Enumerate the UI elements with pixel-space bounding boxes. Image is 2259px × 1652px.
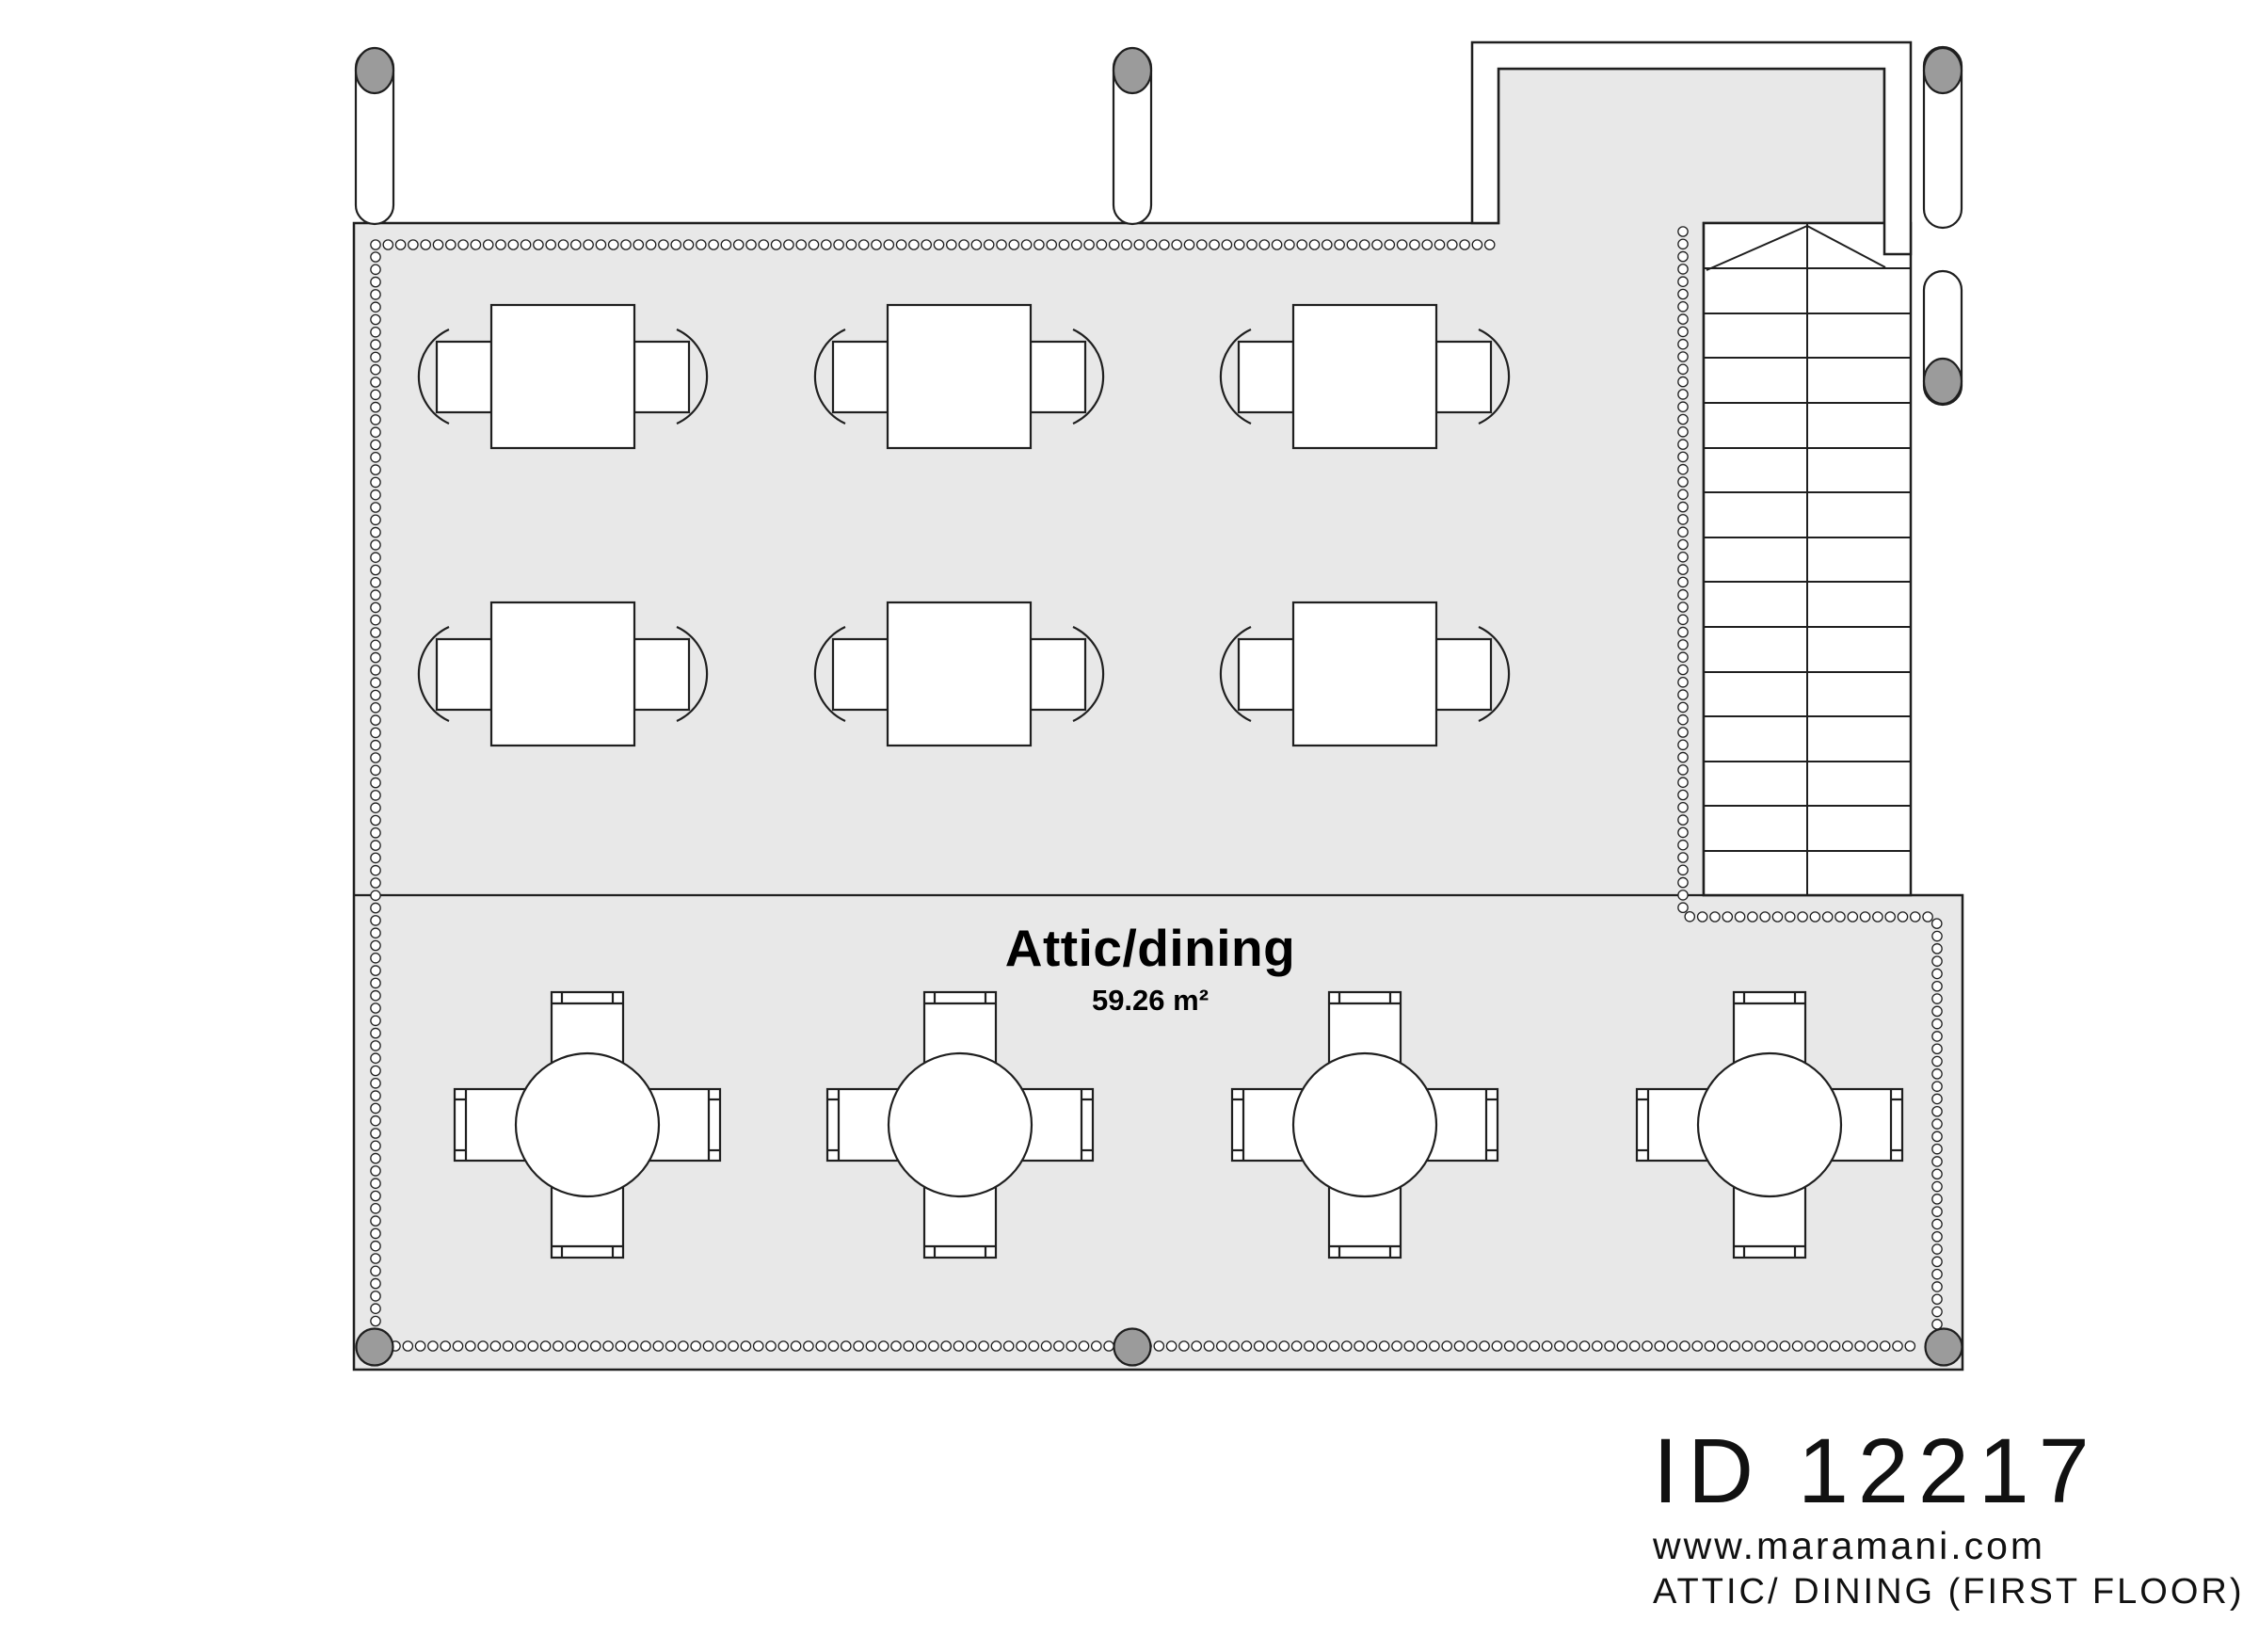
roof-column-cap: [1113, 48, 1151, 93]
floor-column: [1114, 1329, 1151, 1366]
roof-column-cap: [356, 48, 393, 93]
roof-column-cap: [1924, 359, 1962, 404]
floor-column: [357, 1329, 393, 1366]
floor-column: [1926, 1329, 1963, 1366]
room-label-box: Attic/dining 59.26 m²: [960, 922, 1340, 1015]
roof-column-cap: [1924, 48, 1962, 93]
website-url: www.maramani.com: [1653, 1527, 2244, 1565]
room-name: Attic/dining: [960, 922, 1340, 974]
plan-id: ID 12217: [1653, 1425, 2244, 1518]
room-area: 59.26 m²: [960, 986, 1340, 1015]
staircase: [1704, 223, 1911, 895]
floor-plan-canvas: [0, 0, 2259, 1652]
plan-footer: ID 12217 www.maramani.com ATTIC/ DINING …: [1653, 1425, 2244, 1610]
floor-title: ATTIC/ DINING (FIRST FLOOR): [1653, 1574, 2244, 1610]
